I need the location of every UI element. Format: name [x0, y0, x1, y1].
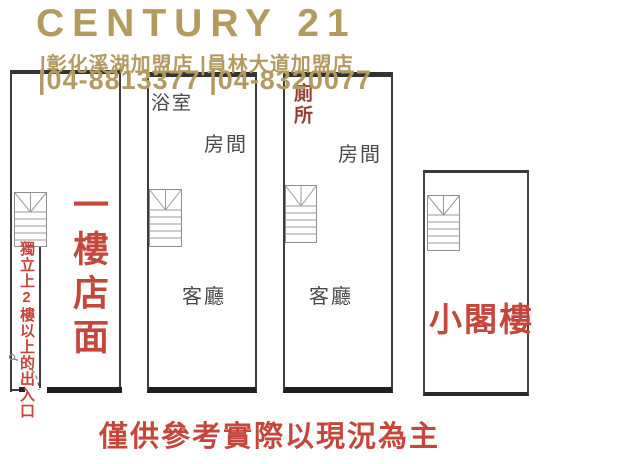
- staircase-icon: [14, 192, 47, 247]
- unit2-room-label: 房間: [204, 128, 248, 157]
- phone-numbers: |04-8813377 |04-8320077: [38, 65, 372, 96]
- unit1-label: 一樓店面: [67, 186, 109, 362]
- staircase-icon: [427, 195, 460, 251]
- floorplan-flyer: CENTURY 21 |彰化溪湖加盟店 |員林大道加盟店 |04-8813377…: [0, 0, 640, 464]
- unit3-room-label: 房間: [338, 138, 382, 167]
- unit4-label: 小閣樓: [429, 293, 534, 341]
- staircase-icon: [149, 189, 182, 247]
- staircase-icon: [285, 185, 317, 243]
- unit1-entrance-note: 獨立上2樓以上的出入口: [19, 241, 34, 419]
- unit1-bottom-wall: [47, 387, 122, 393]
- unit3-livingroom-label: 客廳: [309, 280, 353, 309]
- disclaimer-text: 僅供參考實際以現況為主: [99, 413, 440, 455]
- brand-logo: CENTURY 21: [36, 2, 357, 46]
- unit2-livingroom-label: 客廳: [182, 280, 226, 309]
